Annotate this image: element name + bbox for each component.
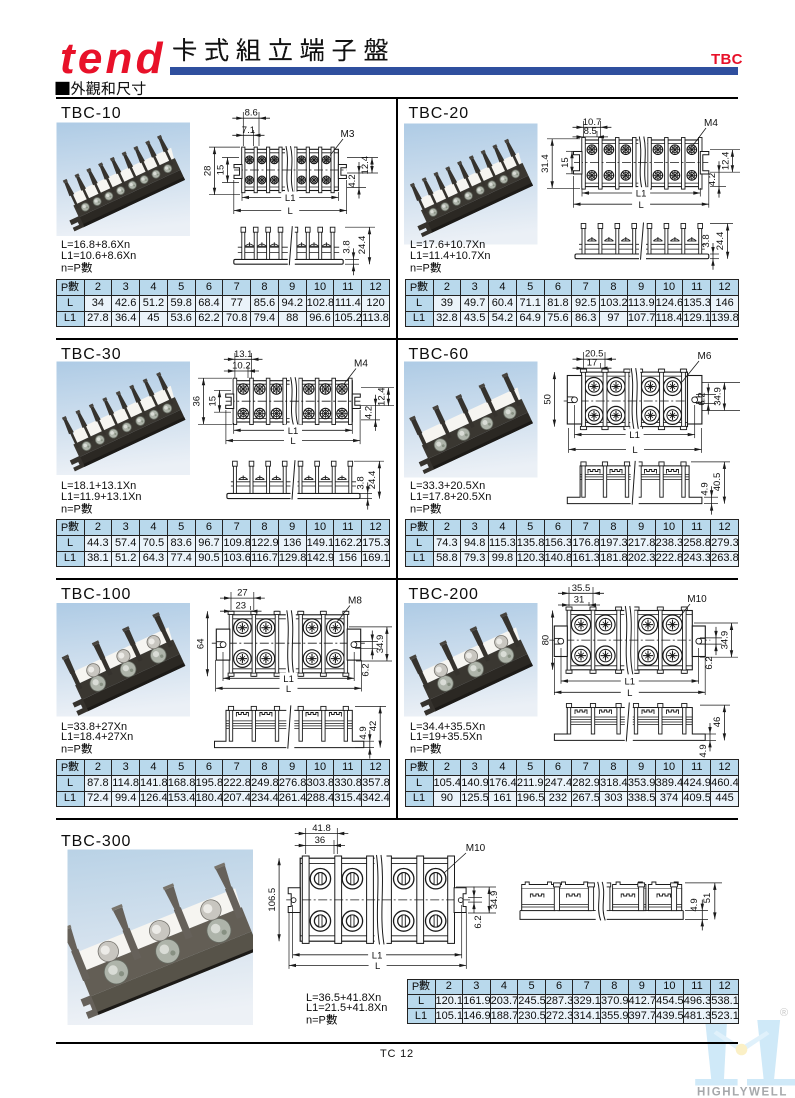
svg-text:41.8: 41.8 (312, 823, 331, 834)
svg-text:L1: L1 (636, 189, 647, 200)
svg-text:24.4: 24.4 (367, 471, 378, 490)
svg-text:4.9: 4.9 (700, 482, 711, 495)
svg-text:13.1: 13.1 (234, 349, 253, 360)
svg-text:12.4: 12.4 (360, 156, 371, 175)
svg-text:24.4: 24.4 (357, 236, 368, 255)
svg-text:28: 28 (203, 166, 214, 177)
svg-text:4.9: 4.9 (698, 744, 709, 757)
svg-text:4.2: 4.2 (347, 174, 358, 187)
svg-text:6.2: 6.2 (704, 656, 715, 669)
svg-text:M10: M10 (466, 843, 486, 854)
svg-text:15: 15 (208, 396, 219, 407)
svg-text:51: 51 (702, 893, 713, 904)
svg-text:M6: M6 (698, 351, 712, 362)
svg-text:L: L (627, 688, 632, 699)
svg-text:3.8: 3.8 (342, 240, 353, 253)
svg-text:7.1: 7.1 (242, 125, 255, 136)
svg-text:L1: L1 (625, 677, 636, 688)
svg-text:15: 15 (216, 165, 227, 176)
svg-text:3.8: 3.8 (701, 234, 712, 247)
svg-text:106.5: 106.5 (267, 888, 278, 912)
svg-text:L: L (288, 206, 293, 217)
svg-text:46: 46 (712, 717, 723, 728)
svg-text:M4: M4 (354, 359, 368, 370)
svg-text:M8: M8 (348, 596, 362, 607)
svg-text:31: 31 (574, 594, 585, 605)
svg-text:6.2: 6.2 (696, 392, 707, 405)
svg-text:35.5: 35.5 (572, 583, 591, 594)
svg-text:M4: M4 (704, 118, 718, 129)
svg-text:34.9: 34.9 (375, 635, 386, 654)
svg-text:M10: M10 (687, 594, 707, 605)
svg-text:8.5: 8.5 (584, 126, 597, 137)
svg-text:L: L (632, 445, 637, 456)
svg-text:6.2: 6.2 (473, 915, 484, 928)
svg-text:4.2: 4.2 (364, 406, 375, 419)
svg-text:34.9: 34.9 (489, 891, 500, 910)
svg-text:L: L (375, 961, 380, 972)
svg-text:50: 50 (542, 394, 553, 405)
svg-text:6.2: 6.2 (360, 663, 371, 676)
svg-text:L1: L1 (629, 430, 640, 441)
svg-text:15: 15 (560, 157, 571, 168)
svg-text:L: L (286, 684, 291, 695)
svg-text:36: 36 (315, 835, 326, 846)
svg-text:L: L (290, 436, 295, 447)
svg-text:64: 64 (195, 639, 206, 650)
svg-text:M3: M3 (341, 129, 355, 140)
svg-text:12.4: 12.4 (720, 152, 731, 171)
svg-text:HIGHLYWELL: HIGHLYWELL (697, 1087, 788, 1098)
svg-text:34.9: 34.9 (712, 387, 723, 406)
svg-text:36: 36 (192, 396, 203, 407)
svg-text:8.6: 8.6 (245, 108, 258, 119)
svg-text:34.9: 34.9 (720, 631, 731, 650)
svg-text:17: 17 (587, 358, 598, 369)
svg-text:23: 23 (236, 601, 247, 612)
svg-text:10.2: 10.2 (232, 360, 251, 371)
svg-text:L: L (638, 200, 643, 211)
svg-text:24.4: 24.4 (715, 232, 726, 251)
svg-text:3.8: 3.8 (356, 476, 367, 489)
svg-text:80: 80 (541, 635, 552, 646)
svg-text:27: 27 (237, 588, 248, 599)
svg-text:®: ® (780, 1007, 788, 1019)
svg-text:4.9: 4.9 (689, 898, 700, 911)
svg-text:31.4: 31.4 (540, 154, 551, 173)
svg-text:L1: L1 (285, 193, 296, 204)
svg-text:12.4: 12.4 (376, 387, 387, 406)
svg-text:42: 42 (368, 721, 379, 732)
svg-text:40.5: 40.5 (712, 473, 723, 492)
